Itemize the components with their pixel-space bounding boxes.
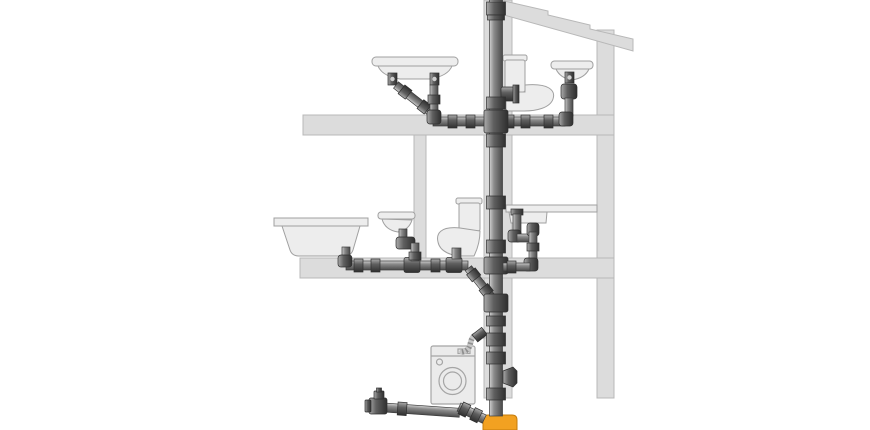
tee-fitting-toilet	[446, 258, 462, 273]
stack-coupling	[487, 97, 506, 109]
top-plug-cap	[377, 388, 382, 392]
stack-coupling	[487, 2, 506, 15]
ground-forty-five-joint	[456, 401, 487, 425]
toilet-tank	[459, 203, 480, 231]
bathtub	[274, 218, 368, 256]
end-cap	[365, 400, 371, 412]
middle-floor-toilet	[438, 198, 482, 256]
coupling	[448, 115, 457, 128]
stack-coupling	[487, 388, 506, 400]
elbow-fitting	[559, 112, 573, 126]
coupling	[371, 259, 380, 272]
washing-machine	[431, 346, 475, 404]
stack-wye-fitting	[484, 294, 508, 312]
basin-rim	[372, 57, 458, 66]
stack-hose-inlet	[487, 333, 506, 346]
middle-floor-washbasin	[378, 212, 415, 232]
right-wall	[597, 30, 614, 398]
stack-coupling	[487, 196, 506, 209]
stack-cross-fitting	[484, 110, 508, 133]
coupling	[428, 95, 440, 104]
coupling	[527, 243, 539, 251]
top-floor-toilet	[503, 55, 554, 111]
sloped-roof-beam	[504, 1, 633, 51]
cleanout-socket	[369, 398, 387, 414]
capped-access-stub	[503, 367, 517, 387]
drainage-illustration	[0, 0, 870, 430]
ground-branch-cleanout	[365, 388, 387, 414]
bathtub-body	[274, 218, 368, 256]
bathtub-elbow	[338, 255, 352, 267]
coupling	[354, 259, 363, 272]
coupling	[544, 115, 553, 128]
top-floor-washbasin-left	[372, 57, 458, 79]
stack-coupling	[487, 352, 506, 364]
coupling	[397, 402, 407, 416]
coupling	[431, 259, 440, 272]
coupling	[521, 115, 530, 128]
coupling	[466, 115, 475, 128]
machine-body	[431, 346, 475, 404]
toilet-outlet-stub	[452, 248, 461, 259]
elbow-fitting	[427, 110, 441, 124]
top-branch-left	[433, 117, 490, 126]
connector-nut	[432, 77, 436, 81]
connector-nut	[567, 75, 571, 79]
basin-rim	[551, 61, 593, 69]
connector-nut	[390, 77, 394, 81]
underground-adapter-orange	[483, 415, 517, 430]
stack-coupling-ring	[488, 15, 505, 20]
toilet-outlet-socket	[513, 85, 519, 103]
stack-coupling	[487, 240, 506, 253]
basin-bowl	[382, 219, 412, 232]
horizontal-pipe	[383, 403, 459, 417]
bottle-trap	[561, 84, 577, 99]
basin-rim	[378, 212, 415, 219]
coupling	[507, 261, 516, 273]
coupling	[409, 252, 421, 260]
interior-partition-wall	[414, 135, 426, 258]
plumbing-diagram	[0, 0, 870, 430]
stack-coupling	[487, 316, 506, 326]
stack-coupling	[487, 134, 506, 147]
